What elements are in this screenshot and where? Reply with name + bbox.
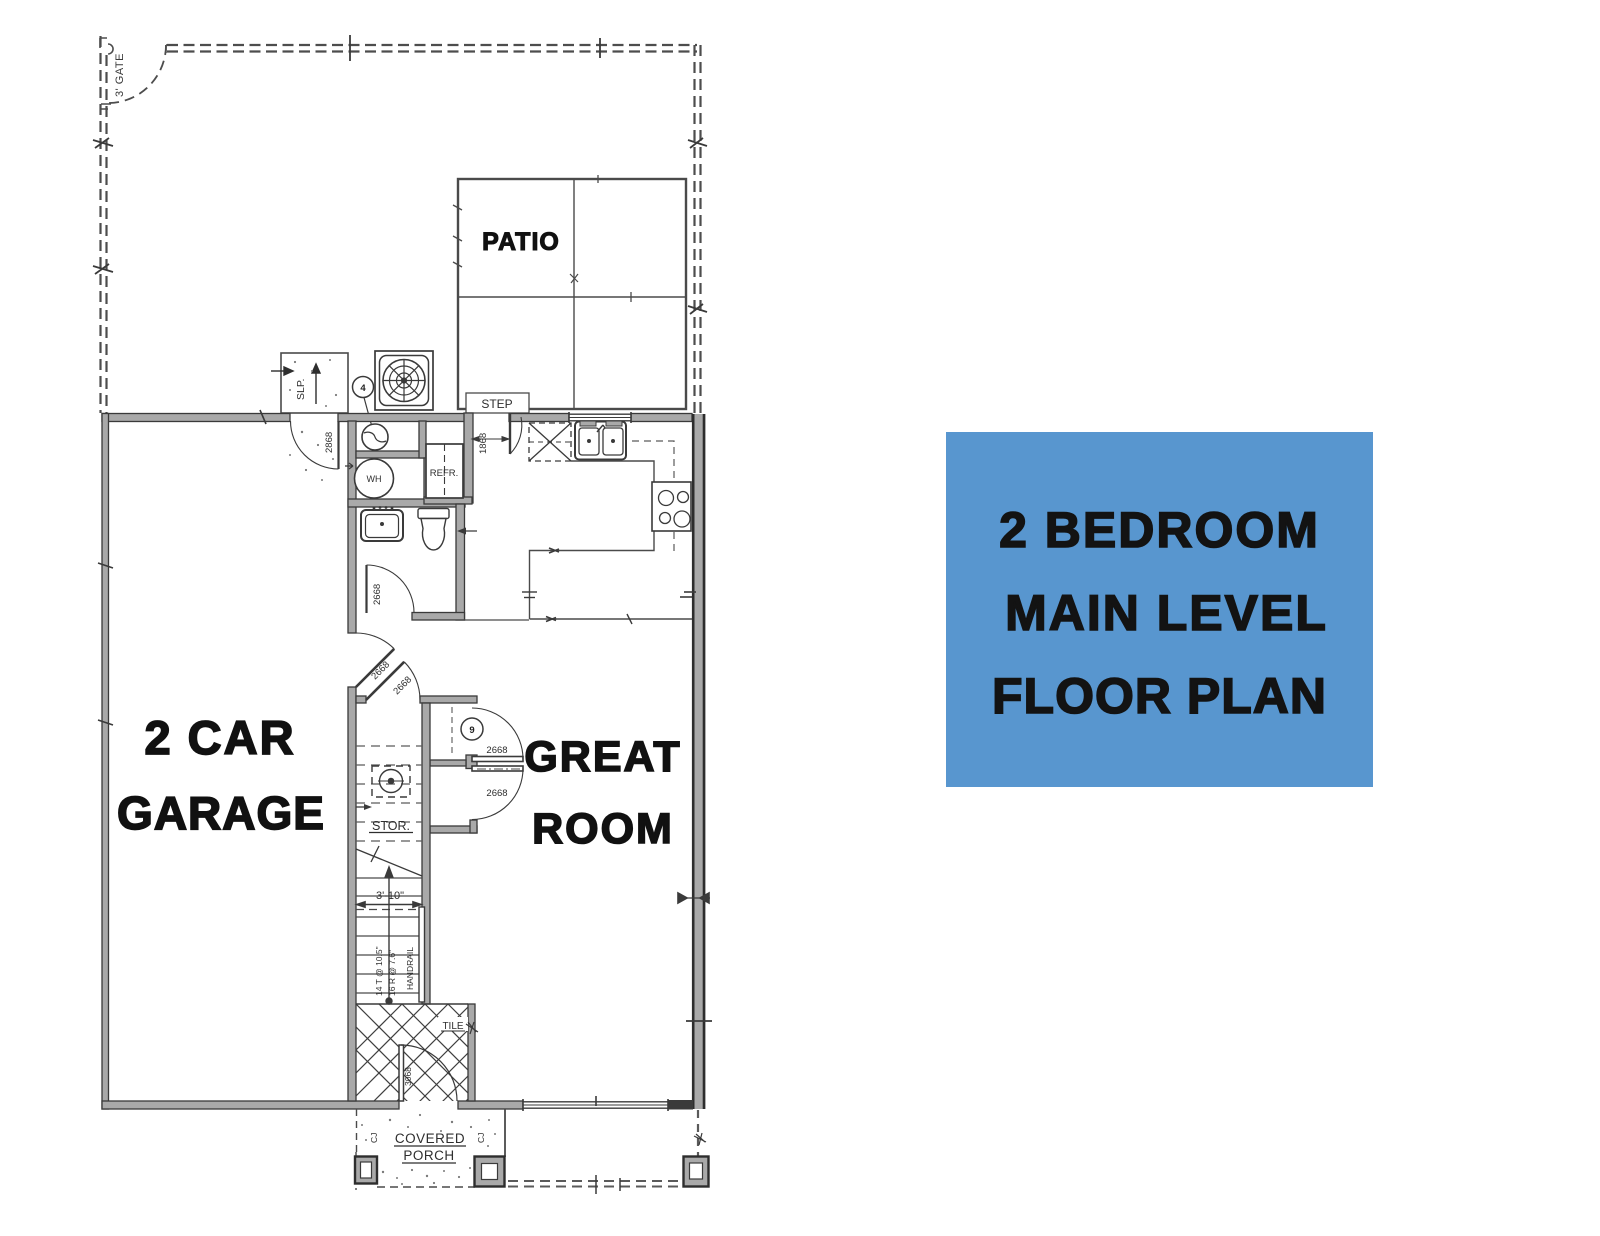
svg-text:REFR.: REFR. <box>430 468 459 479</box>
svg-text:TILE: TILE <box>442 1021 463 1032</box>
svg-text:4: 4 <box>360 383 366 394</box>
svg-text:SLP.: SLP. <box>295 379 307 400</box>
svg-text:2668: 2668 <box>486 745 507 756</box>
svg-text:GREAT: GREAT <box>524 733 681 781</box>
svg-text:2668: 2668 <box>486 788 507 799</box>
svg-text:2668: 2668 <box>391 674 414 697</box>
svg-text:PATIO: PATIO <box>482 228 560 256</box>
svg-text:3'-10": 3'-10" <box>376 890 404 902</box>
svg-text:3068: 3068 <box>403 1067 413 1086</box>
svg-text:9: 9 <box>469 725 474 736</box>
svg-text:16 R @ 7.6": 16 R @ 7.6" <box>387 950 397 996</box>
svg-text:2 CAR: 2 CAR <box>144 711 295 764</box>
svg-text:STOR.: STOR. <box>372 819 410 833</box>
svg-text:3' GATE: 3' GATE <box>114 53 126 97</box>
svg-text:CJ: CJ <box>369 1133 379 1143</box>
svg-text:HANDRAIL: HANDRAIL <box>405 947 415 990</box>
svg-text:CJ: CJ <box>476 1133 486 1143</box>
svg-text:2668: 2668 <box>372 584 383 605</box>
svg-text:1868: 1868 <box>478 433 489 454</box>
svg-text:2868: 2868 <box>324 432 335 453</box>
svg-text:COVERED: COVERED <box>395 1131 465 1146</box>
svg-text:GARAGE: GARAGE <box>117 787 325 839</box>
svg-text:ROOM: ROOM <box>532 805 674 853</box>
svg-text:14 T @ 10.5": 14 T @ 10.5" <box>374 946 384 996</box>
svg-text:WH: WH <box>367 474 382 484</box>
svg-text:STEP: STEP <box>481 397 512 411</box>
svg-text:PORCH: PORCH <box>403 1148 454 1163</box>
